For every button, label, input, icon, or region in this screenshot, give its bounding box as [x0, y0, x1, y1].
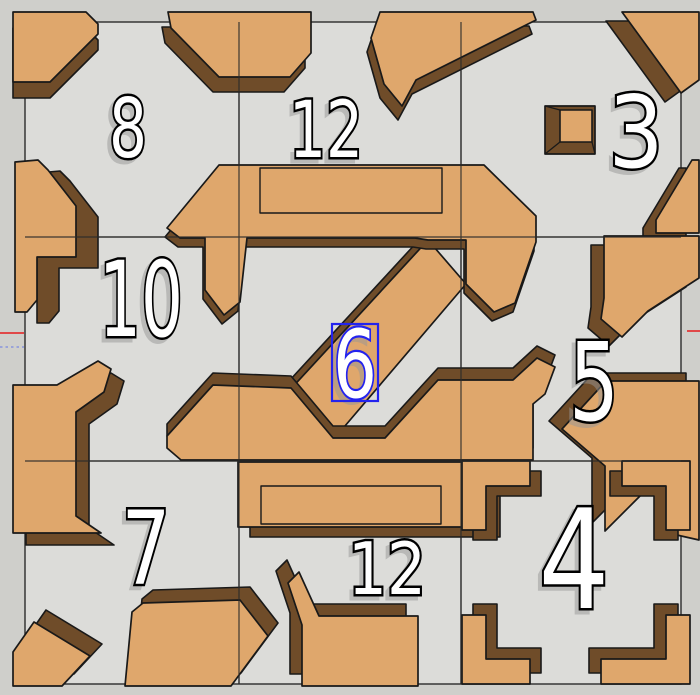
- cell-number-6-7[interactable]: 7: [122, 490, 171, 609]
- cell-number-7-12[interactable]: 12: [348, 527, 426, 611]
- model-viewport[interactable]: 881212331010665577121244: [0, 0, 700, 695]
- cell-number-3-10[interactable]: 10: [99, 239, 183, 361]
- cell-number-8-4[interactable]: 4: [539, 480, 610, 641]
- cell-number-1-12[interactable]: 12: [289, 86, 363, 176]
- cell-number-4-6[interactable]: 6: [333, 311, 377, 420]
- block-d2a-bottom-mid-slab[interactable]: [238, 462, 488, 527]
- cell-number-5-5[interactable]: 5: [569, 321, 619, 446]
- block-a5-small-cube[interactable]: [560, 110, 592, 142]
- cell-number-0-8[interactable]: 8: [109, 82, 147, 177]
- cell-number-2-3[interactable]: 3: [609, 74, 664, 191]
- model-canvas[interactable]: 881212331010665577121244: [0, 0, 700, 695]
